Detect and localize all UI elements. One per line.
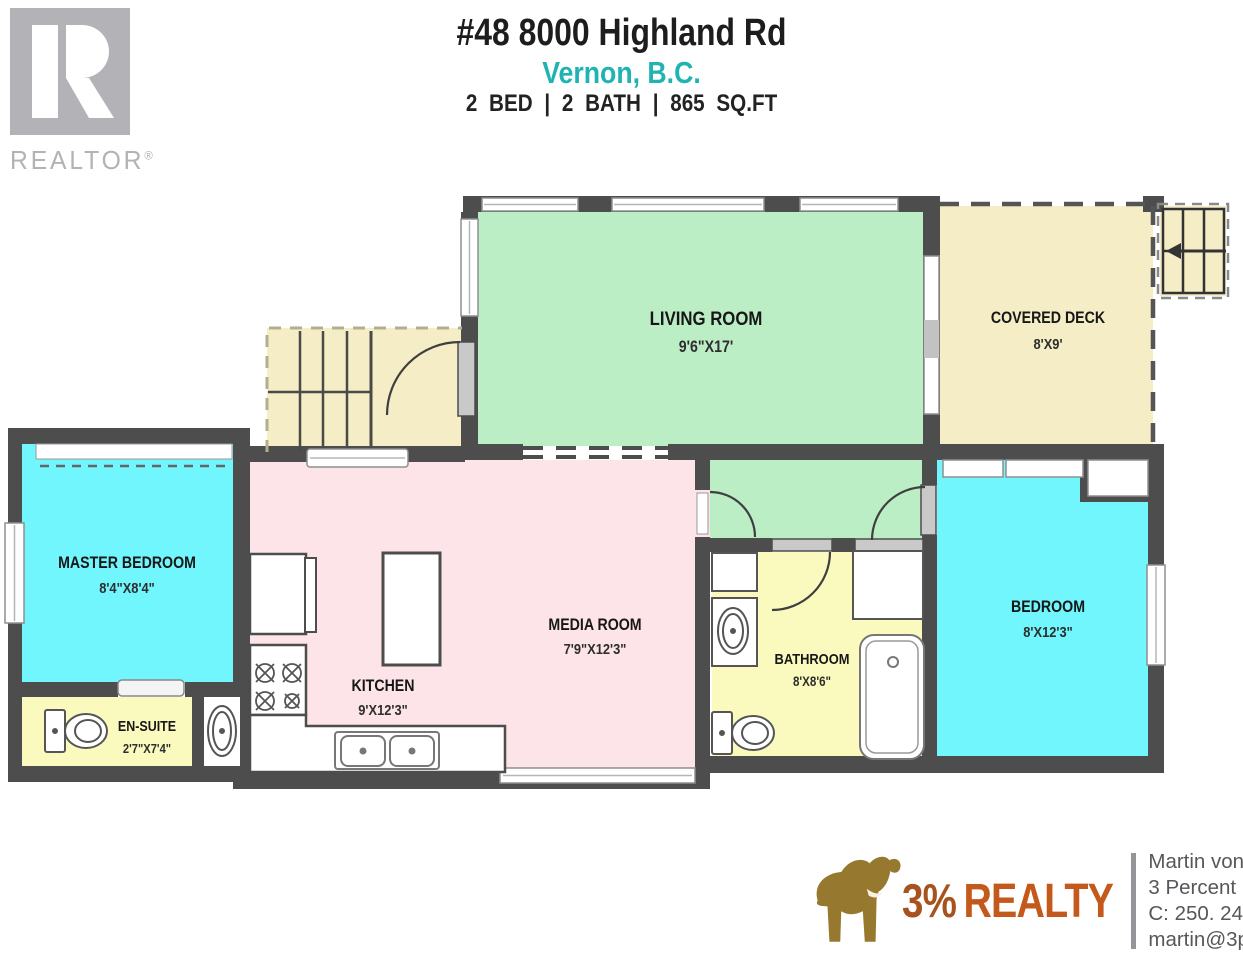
realtor-logo: REALTOR®: [10, 8, 170, 176]
footer-divider: [1131, 853, 1136, 949]
bath-closet-slab: [855, 539, 923, 551]
listing-header: #48 8000 Highland Rd Vernon, B.C. 2 BED …: [0, 10, 1243, 119]
elephant-icon: [800, 849, 908, 953]
ensuite-toilet: [45, 710, 107, 752]
agent-email: martin@3pr.ca: [1148, 927, 1243, 953]
floor-plan: LIVING ROOM 9'6"X17' COVERED DECK 8'X9' …: [0, 182, 1243, 807]
agent-name: Martin von Holst: [1148, 849, 1243, 875]
bedroom-door-slab: [921, 485, 936, 535]
bath-vanity-sink: [712, 598, 757, 666]
window-bedroom-right: [1147, 565, 1165, 665]
bathtub: [860, 635, 924, 759]
window-master-left: [5, 523, 24, 623]
brokerage-footer: 3% REALTY Martin von Holst 3 Percent Rea…: [800, 843, 1243, 958]
kitchen-name: KITCHEN: [351, 677, 414, 695]
covered-deck-dims: 8'X9': [1033, 335, 1062, 352]
media-room-dims: 7'9"X12'3": [564, 640, 627, 657]
master-bedroom-dims: 8'4"X8'4": [99, 579, 155, 596]
window-media-bottom: [500, 768, 695, 783]
open-plan-dashes: [523, 448, 668, 457]
realtor-r-icon: [10, 8, 132, 136]
bathroom-door-slab: [772, 539, 832, 551]
bathroom-name: BATHROOM: [775, 650, 850, 667]
media-room-name: MEDIA ROOM: [548, 616, 641, 634]
brand-realty: REALTY: [963, 874, 1113, 929]
bedroom-name: BEDROOM: [1011, 598, 1085, 616]
bath-vanity-cabinet: [712, 553, 757, 591]
bathroom-closet: [853, 551, 923, 619]
fridge: [250, 554, 306, 634]
living-room-name: LIVING ROOM: [650, 308, 763, 329]
realtor-wordmark: REALTOR®: [10, 145, 162, 176]
brand-wordmark: 3% REALTY: [902, 873, 1113, 929]
brand-percent: 3%: [902, 873, 956, 928]
covered-deck-name: COVERED DECK: [991, 309, 1105, 327]
fridge-handle: [305, 558, 316, 632]
bathroom-dims: 8'X8'6": [793, 674, 831, 689]
listing-city: Vernon, B.C.: [87, 56, 1156, 89]
double-sink: [335, 732, 439, 769]
agent-company: 3 Percent Realty Inc.: [1148, 875, 1243, 901]
entry-door-slab: [458, 342, 475, 416]
ensuite-pocket-door: [118, 680, 184, 696]
living-room-dims: 9'6"X17': [679, 338, 733, 356]
window-living-left: [461, 219, 478, 316]
window-living-top-3: [800, 198, 898, 211]
kitchen-dims: 9'X12'3": [358, 701, 407, 718]
bathroom-toilet: [712, 712, 774, 754]
alcove-sink: [208, 706, 236, 756]
media-hall-opening: [695, 490, 710, 537]
window-living-top-1: [482, 198, 578, 211]
agent-phone: C: 250. 241. 5000: [1148, 901, 1243, 927]
agent-info: Martin von Holst 3 Percent Realty Inc. C…: [1148, 849, 1243, 953]
kitchen-island: [383, 553, 440, 665]
en-suite-name: EN-SUITE: [118, 718, 176, 734]
listing-address: #48 8000 Highland Rd: [99, 10, 1143, 56]
listing-specs: 2 BED | 2 BATH | 865 SQ.FT: [87, 89, 1156, 119]
en-suite-dims: 2'7"X7'4": [123, 741, 171, 756]
sliding-door-deck: [924, 256, 939, 414]
bedroom-dims: 8'X12'3": [1023, 623, 1072, 640]
master-bedroom-name: MASTER BEDROOM: [58, 554, 196, 572]
entry-landing: [307, 449, 408, 467]
window-living-top-2: [612, 198, 764, 211]
